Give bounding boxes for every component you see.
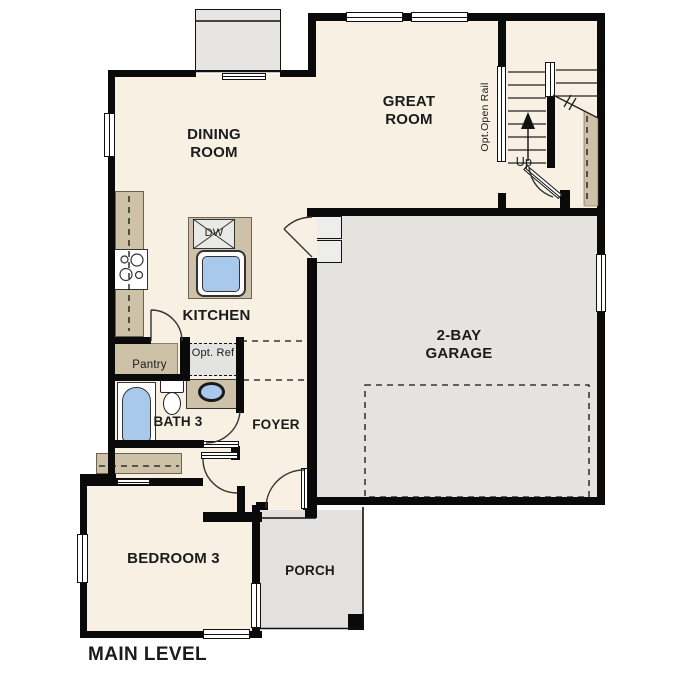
- bedroom-hall-door: [203, 459, 237, 493]
- opt-ref-label: Opt. Ref: [190, 346, 236, 360]
- kitchen-label: KITCHEN: [169, 307, 264, 325]
- bath-label: BATH 3: [153, 414, 203, 430]
- dishwasher-label: DW: [199, 226, 229, 240]
- opt-open-rail-label: Opt.Open Rail: [478, 62, 492, 172]
- bath-door: [206, 411, 240, 443]
- stair-closet-door: [529, 168, 553, 197]
- up-label: Up: [510, 155, 538, 169]
- stove-burners: [120, 254, 143, 281]
- garage-parking-outline: [365, 385, 589, 497]
- bedroom-label: BEDROOM 3: [111, 550, 236, 568]
- under-stair-closet: [584, 111, 598, 206]
- front-door: [266, 470, 304, 508]
- foyer-label: FOYER: [247, 417, 305, 433]
- stair-treads: [508, 70, 597, 163]
- floor-plan: DINING ROOM GREAT ROOM KITCHEN 2-BAY GAR…: [0, 0, 687, 687]
- stair-break-mark: [564, 95, 576, 110]
- level-title: MAIN LEVEL: [88, 646, 258, 664]
- bay-window-lines: [196, 21, 280, 72]
- pantry-label: Pantry: [122, 358, 177, 372]
- porch-label: PORCH: [281, 563, 339, 579]
- dining-room-label: DINING ROOM: [174, 126, 254, 162]
- garage-entry-door: [284, 217, 312, 257]
- great-room-label: GREAT ROOM: [369, 93, 449, 129]
- garage-label: 2-BAY GARAGE: [418, 327, 500, 363]
- linework: [0, 0, 687, 687]
